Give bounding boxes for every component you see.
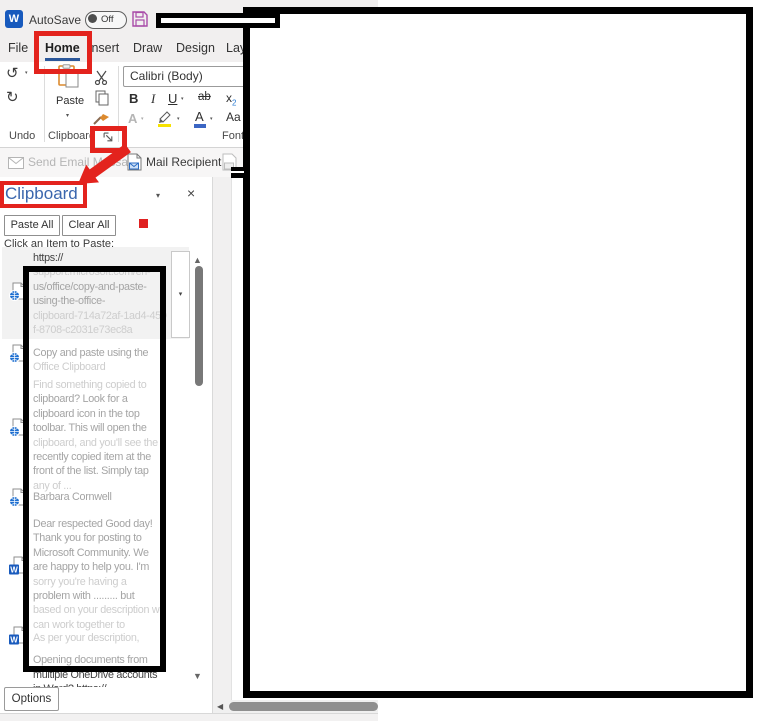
scroll-down-icon[interactable]: ▼ [193, 671, 202, 681]
strikethrough-button[interactable]: ab [198, 91, 211, 103]
copy-icon[interactable] [95, 90, 109, 111]
clipboard-item-line: https:// [33, 251, 173, 265]
pane-close-icon[interactable]: × [187, 185, 195, 201]
text-effects-button[interactable]: A [128, 111, 137, 126]
autosave-state-label: Off [101, 14, 114, 25]
word-app-icon: W [5, 10, 23, 28]
font-color-button[interactable]: A [195, 109, 204, 124]
tab-draw[interactable]: Draw [133, 41, 162, 55]
tab-file[interactable]: File [8, 41, 28, 55]
save-icon[interactable] [131, 10, 149, 33]
autosave-toggle[interactable]: Off [85, 11, 127, 29]
options-button[interactable]: Options [4, 687, 59, 711]
undo-group-label: Undo [9, 130, 35, 142]
vertical-scrollbar-thumb[interactable] [195, 266, 203, 386]
cut-icon[interactable] [94, 70, 109, 90]
font-group-label: Font [222, 130, 244, 142]
text-effects-dropdown-icon[interactable]: ▾ [141, 116, 144, 122]
subscript-button[interactable]: x2 [226, 91, 236, 107]
annotation-red-arrow [60, 135, 140, 190]
horizontal-scrollbar: ◀ [213, 700, 378, 713]
tab-design[interactable]: Design [176, 41, 215, 55]
undo-dropdown-icon[interactable]: ▾ [25, 70, 28, 76]
annotation-red-box-home-tab [34, 31, 92, 74]
paste-dropdown-icon[interactable]: ▾ [66, 112, 69, 119]
annotation-black-rectangle-list [23, 266, 166, 672]
font-name-select[interactable]: Calibri (Body) [123, 66, 257, 87]
scroll-left-icon[interactable]: ◀ [217, 702, 223, 711]
scroll-up-icon[interactable]: ▲ [193, 255, 202, 265]
pane-gutter [213, 177, 232, 713]
font-color-dropdown-icon[interactable]: ▾ [210, 116, 213, 122]
svg-text:W: W [10, 635, 18, 644]
clear-all-button[interactable]: Clear All [62, 215, 116, 236]
autosave-label: AutoSave [29, 13, 81, 27]
bold-button[interactable]: B [129, 91, 138, 106]
highlight-color-icon[interactable] [157, 110, 173, 132]
svg-text:W: W [10, 565, 18, 574]
tab-insert[interactable]: Insert [88, 41, 119, 55]
paste-all-button[interactable]: Paste All [4, 215, 60, 236]
pane-menu-dropdown-icon[interactable]: ▾ [156, 191, 160, 200]
underline-dropdown-icon[interactable]: ▾ [181, 96, 184, 102]
underline-button[interactable]: U [168, 91, 177, 106]
highlight-dropdown-icon[interactable]: ▾ [177, 116, 180, 122]
annotation-black-marker [231, 167, 244, 178]
annotation-red-dot [139, 219, 148, 228]
annotation-black-rectangle-top [156, 13, 280, 28]
horizontal-scrollbar-thumb[interactable] [229, 702, 378, 711]
paste-button[interactable]: Paste [56, 95, 84, 107]
redo-icon[interactable]: ↻ [6, 90, 19, 105]
mail-recipient-button[interactable]: Mail Recipient [146, 155, 221, 169]
italic-button[interactable]: I [151, 91, 155, 107]
white-overlay-panel [243, 7, 753, 698]
undo-icon[interactable]: ↺ [6, 66, 19, 81]
autosave-toggle-knob [88, 14, 97, 23]
send-email-icon [8, 156, 24, 174]
item-dropdown-button[interactable]: ▾ [171, 251, 190, 338]
change-case-button[interactable]: Aa [226, 110, 241, 124]
